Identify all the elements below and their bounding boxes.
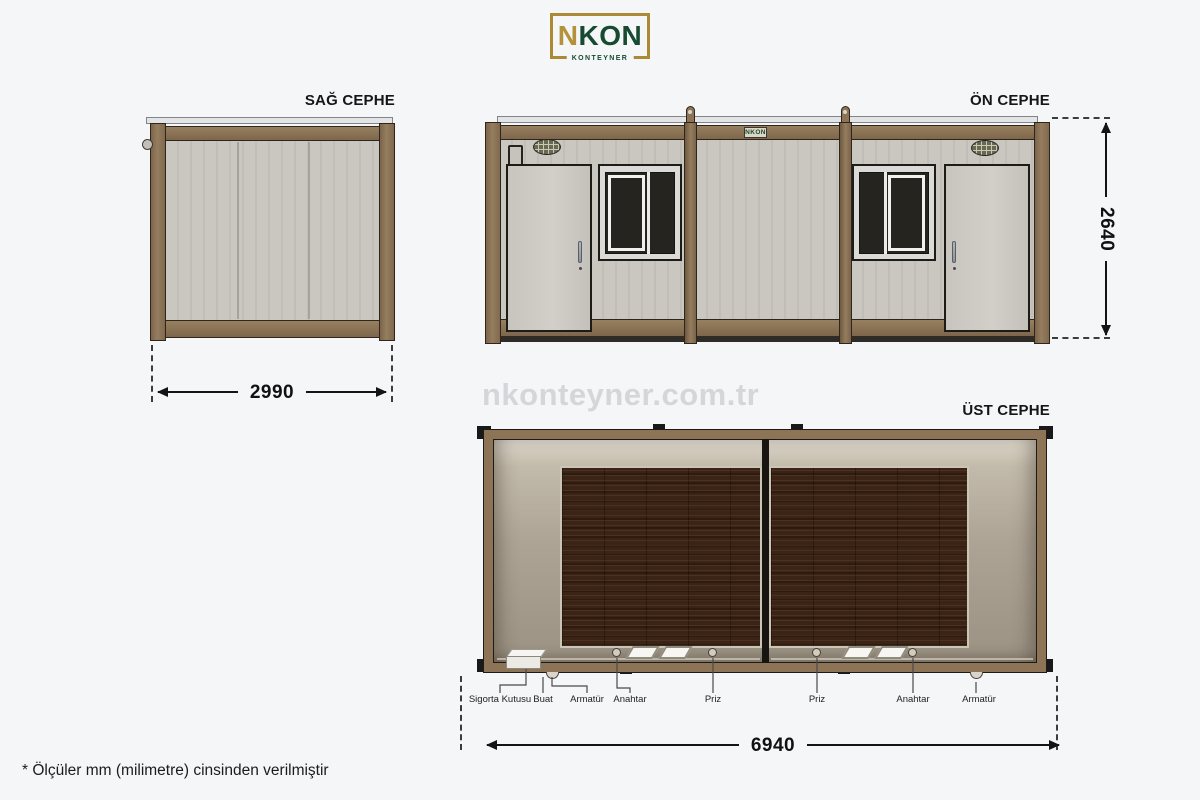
right-facade-bottom-rail — [153, 320, 392, 338]
window-left-sliding-sash — [608, 175, 645, 251]
window-right-sliding-sash — [888, 175, 925, 251]
dimension-arrow-up — [1105, 123, 1108, 197]
front-facade-title: ÖN CEPHE — [920, 92, 1050, 109]
logo-wordmark: NKON — [558, 22, 642, 50]
leader-lines — [440, 640, 1060, 702]
label-fixture-right: Armatür — [962, 694, 996, 705]
dimension-arrow-right — [807, 744, 1059, 747]
top-facade-title: ÜST CEPHE — [920, 402, 1050, 419]
width-dimension-value: 2990 — [238, 383, 306, 402]
extension-line — [1052, 337, 1110, 339]
logo-letter-n: N — [558, 20, 579, 51]
door-keyhole — [953, 267, 956, 270]
front-facade-corner-post-left — [485, 122, 501, 344]
site-watermark: nkonteyner.com.tr — [482, 377, 759, 413]
right-facade-top-rail — [153, 126, 392, 141]
partition-wall — [762, 439, 769, 663]
label-socket-right: Priz — [809, 694, 825, 705]
front-facade-base-line — [487, 336, 1048, 342]
technical-drawing-page: NKON KONTEYNER SAĞ CEPHE 2990 ÖN CEPHE N… — [0, 0, 1200, 800]
front-facade-corner-post-right — [1034, 122, 1050, 344]
dimension-arrow-left — [158, 391, 238, 394]
width-dimension: 2990 — [158, 384, 386, 400]
front-facade-roof — [497, 116, 1038, 123]
logo-subtitle: KONTEYNER — [567, 55, 634, 62]
door-handle — [578, 241, 582, 263]
room-right-wood-floor — [769, 466, 969, 648]
company-logo: NKON KONTEYNER — [550, 13, 650, 59]
window-left-mullion — [647, 172, 650, 254]
module-joint-post — [684, 122, 697, 344]
dimension-arrow-right — [306, 391, 386, 394]
units-footnote: * Ölçüler mm (milimetre) cinsinden veril… — [22, 762, 329, 780]
module-joint-post — [839, 122, 852, 344]
extension-line — [1052, 117, 1110, 119]
length-dimension: 6940 — [487, 737, 1059, 753]
vent-grille-icon — [533, 139, 561, 155]
label-socket-left: Priz — [705, 694, 721, 705]
dimension-arrow-down — [1105, 261, 1108, 335]
length-dimension-value: 6940 — [739, 736, 807, 755]
right-facade-wall-panel — [166, 140, 379, 321]
label-fixture-left: Armatür — [570, 694, 604, 705]
window-right-mullion — [884, 172, 887, 254]
joint-cap-hole — [843, 110, 847, 114]
extension-line — [391, 345, 393, 402]
right-facade-corner-post-left — [150, 123, 166, 341]
room-left-wood-floor — [560, 466, 762, 648]
label-switch-right: Anahtar — [896, 694, 929, 705]
right-facade-roof — [146, 117, 393, 124]
door-handle — [952, 241, 956, 263]
logo-letters-kon: KON — [579, 20, 643, 51]
door-keyhole — [579, 267, 582, 270]
height-dimension-value: 2640 — [1095, 197, 1117, 261]
height-dimension: 2640 — [1097, 123, 1115, 335]
right-facade-corner-post-right — [379, 123, 395, 341]
panel-seam — [237, 142, 239, 319]
joint-cap-hole — [688, 110, 692, 114]
extension-line — [151, 345, 153, 402]
brand-plate: NKON — [744, 127, 767, 138]
label-fuse-box: Sigorta Kutusu — [469, 694, 531, 705]
extension-line — [460, 676, 462, 750]
label-switch-left: Anahtar — [613, 694, 646, 705]
front-facade-top-rail — [500, 125, 1035, 140]
electrical-inlet-box — [508, 145, 523, 166]
panel-seam — [308, 142, 310, 319]
drain-outlet-icon — [142, 139, 153, 150]
label-junction-box: Buat — [533, 694, 553, 705]
right-facade-title: SAĞ CEPHE — [200, 92, 395, 109]
entry-door-right — [944, 164, 1030, 332]
vent-grille-icon — [971, 140, 999, 156]
dimension-arrow-left — [487, 744, 739, 747]
